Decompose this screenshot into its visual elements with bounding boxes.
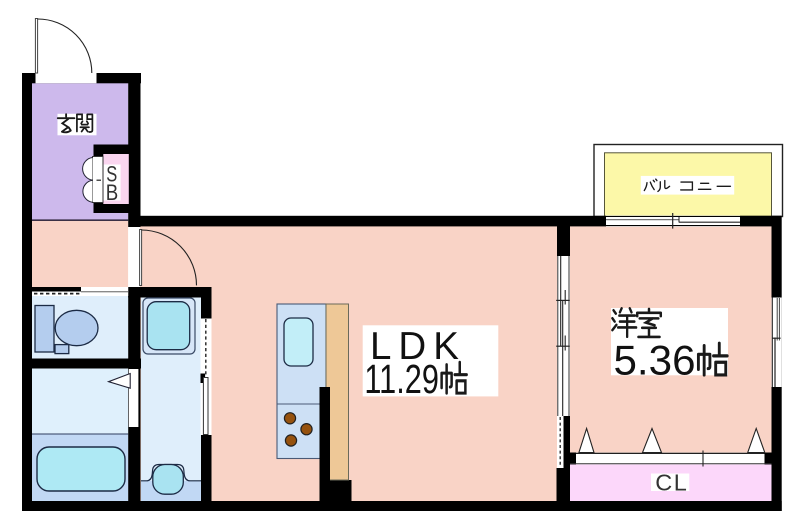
svg-text:11.29: 11.29 — [364, 356, 439, 402]
svg-text:5.36: 5.36 — [614, 336, 696, 383]
svg-text:B: B — [106, 180, 119, 205]
svg-text:CL: CL — [655, 469, 688, 495]
